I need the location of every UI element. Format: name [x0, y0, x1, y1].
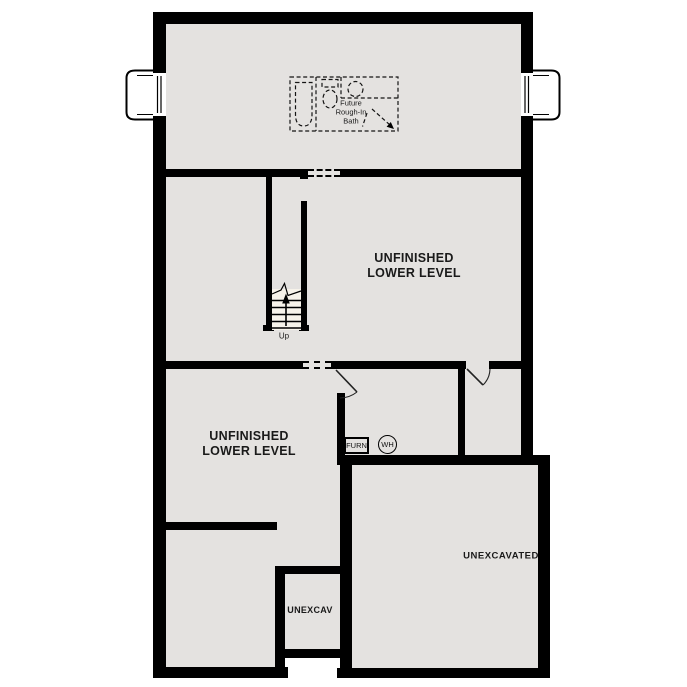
stairs-up-label: Up — [279, 332, 289, 341]
future-bath-label: Future Rough-In Bath — [336, 99, 367, 126]
wall-unexcav-top — [275, 566, 347, 574]
wall-mid-bottom — [337, 455, 550, 465]
dashed-opening-b — [303, 361, 331, 369]
window-opening-right — [521, 73, 533, 116]
floor-middle-room — [166, 169, 521, 369]
window-opening-left — [153, 73, 166, 116]
floor-plan: UNFINISHED LOWER LEVEL UNFINISHED LOWER … — [0, 0, 687, 687]
wall-unexcav-left — [275, 566, 285, 678]
room-label-middle: UNFINISHED LOWER LEVEL — [367, 251, 461, 281]
wall-stair-right — [301, 201, 307, 330]
floor-unexcavated — [352, 465, 538, 668]
wall-unexcav-bottom — [275, 649, 345, 658]
furnace-label: FURN — [346, 441, 367, 450]
floor-left-room-upper — [166, 361, 340, 566]
wall-stair-foot-right — [299, 325, 309, 331]
water-heater-label: WH — [381, 440, 394, 449]
wall-wing — [166, 522, 277, 530]
room-label-left: UNFINISHED LOWER LEVEL — [202, 429, 296, 459]
furnace-symbol: FURN — [344, 437, 369, 454]
wall-divider-a-stub — [300, 169, 308, 179]
wall-divider-b-right — [489, 361, 521, 369]
wall-outer-top — [153, 12, 533, 24]
wall-stair-left — [266, 177, 272, 330]
wall-divider-a-right — [340, 169, 521, 177]
floor-left-room-lower — [166, 566, 275, 667]
water-heater-symbol: WH — [378, 435, 397, 454]
wall-unexcavated-right — [538, 455, 550, 678]
floor-closet — [458, 361, 521, 465]
room-label-unexcav: UNEXCAV — [287, 605, 332, 615]
wall-outer-bottom-left — [153, 667, 288, 678]
wall-divider-b-mid — [331, 361, 466, 369]
room-label-unexcavated: UNEXCAVATED — [463, 551, 539, 562]
wall-unexcavated-bottom — [337, 668, 550, 678]
wall-stair-foot-left — [263, 325, 274, 331]
wall-divider-a-left — [166, 169, 308, 177]
wall-closet-divider — [458, 369, 465, 465]
wall-divider-b-left — [166, 361, 303, 369]
dashed-opening-a — [308, 169, 340, 177]
